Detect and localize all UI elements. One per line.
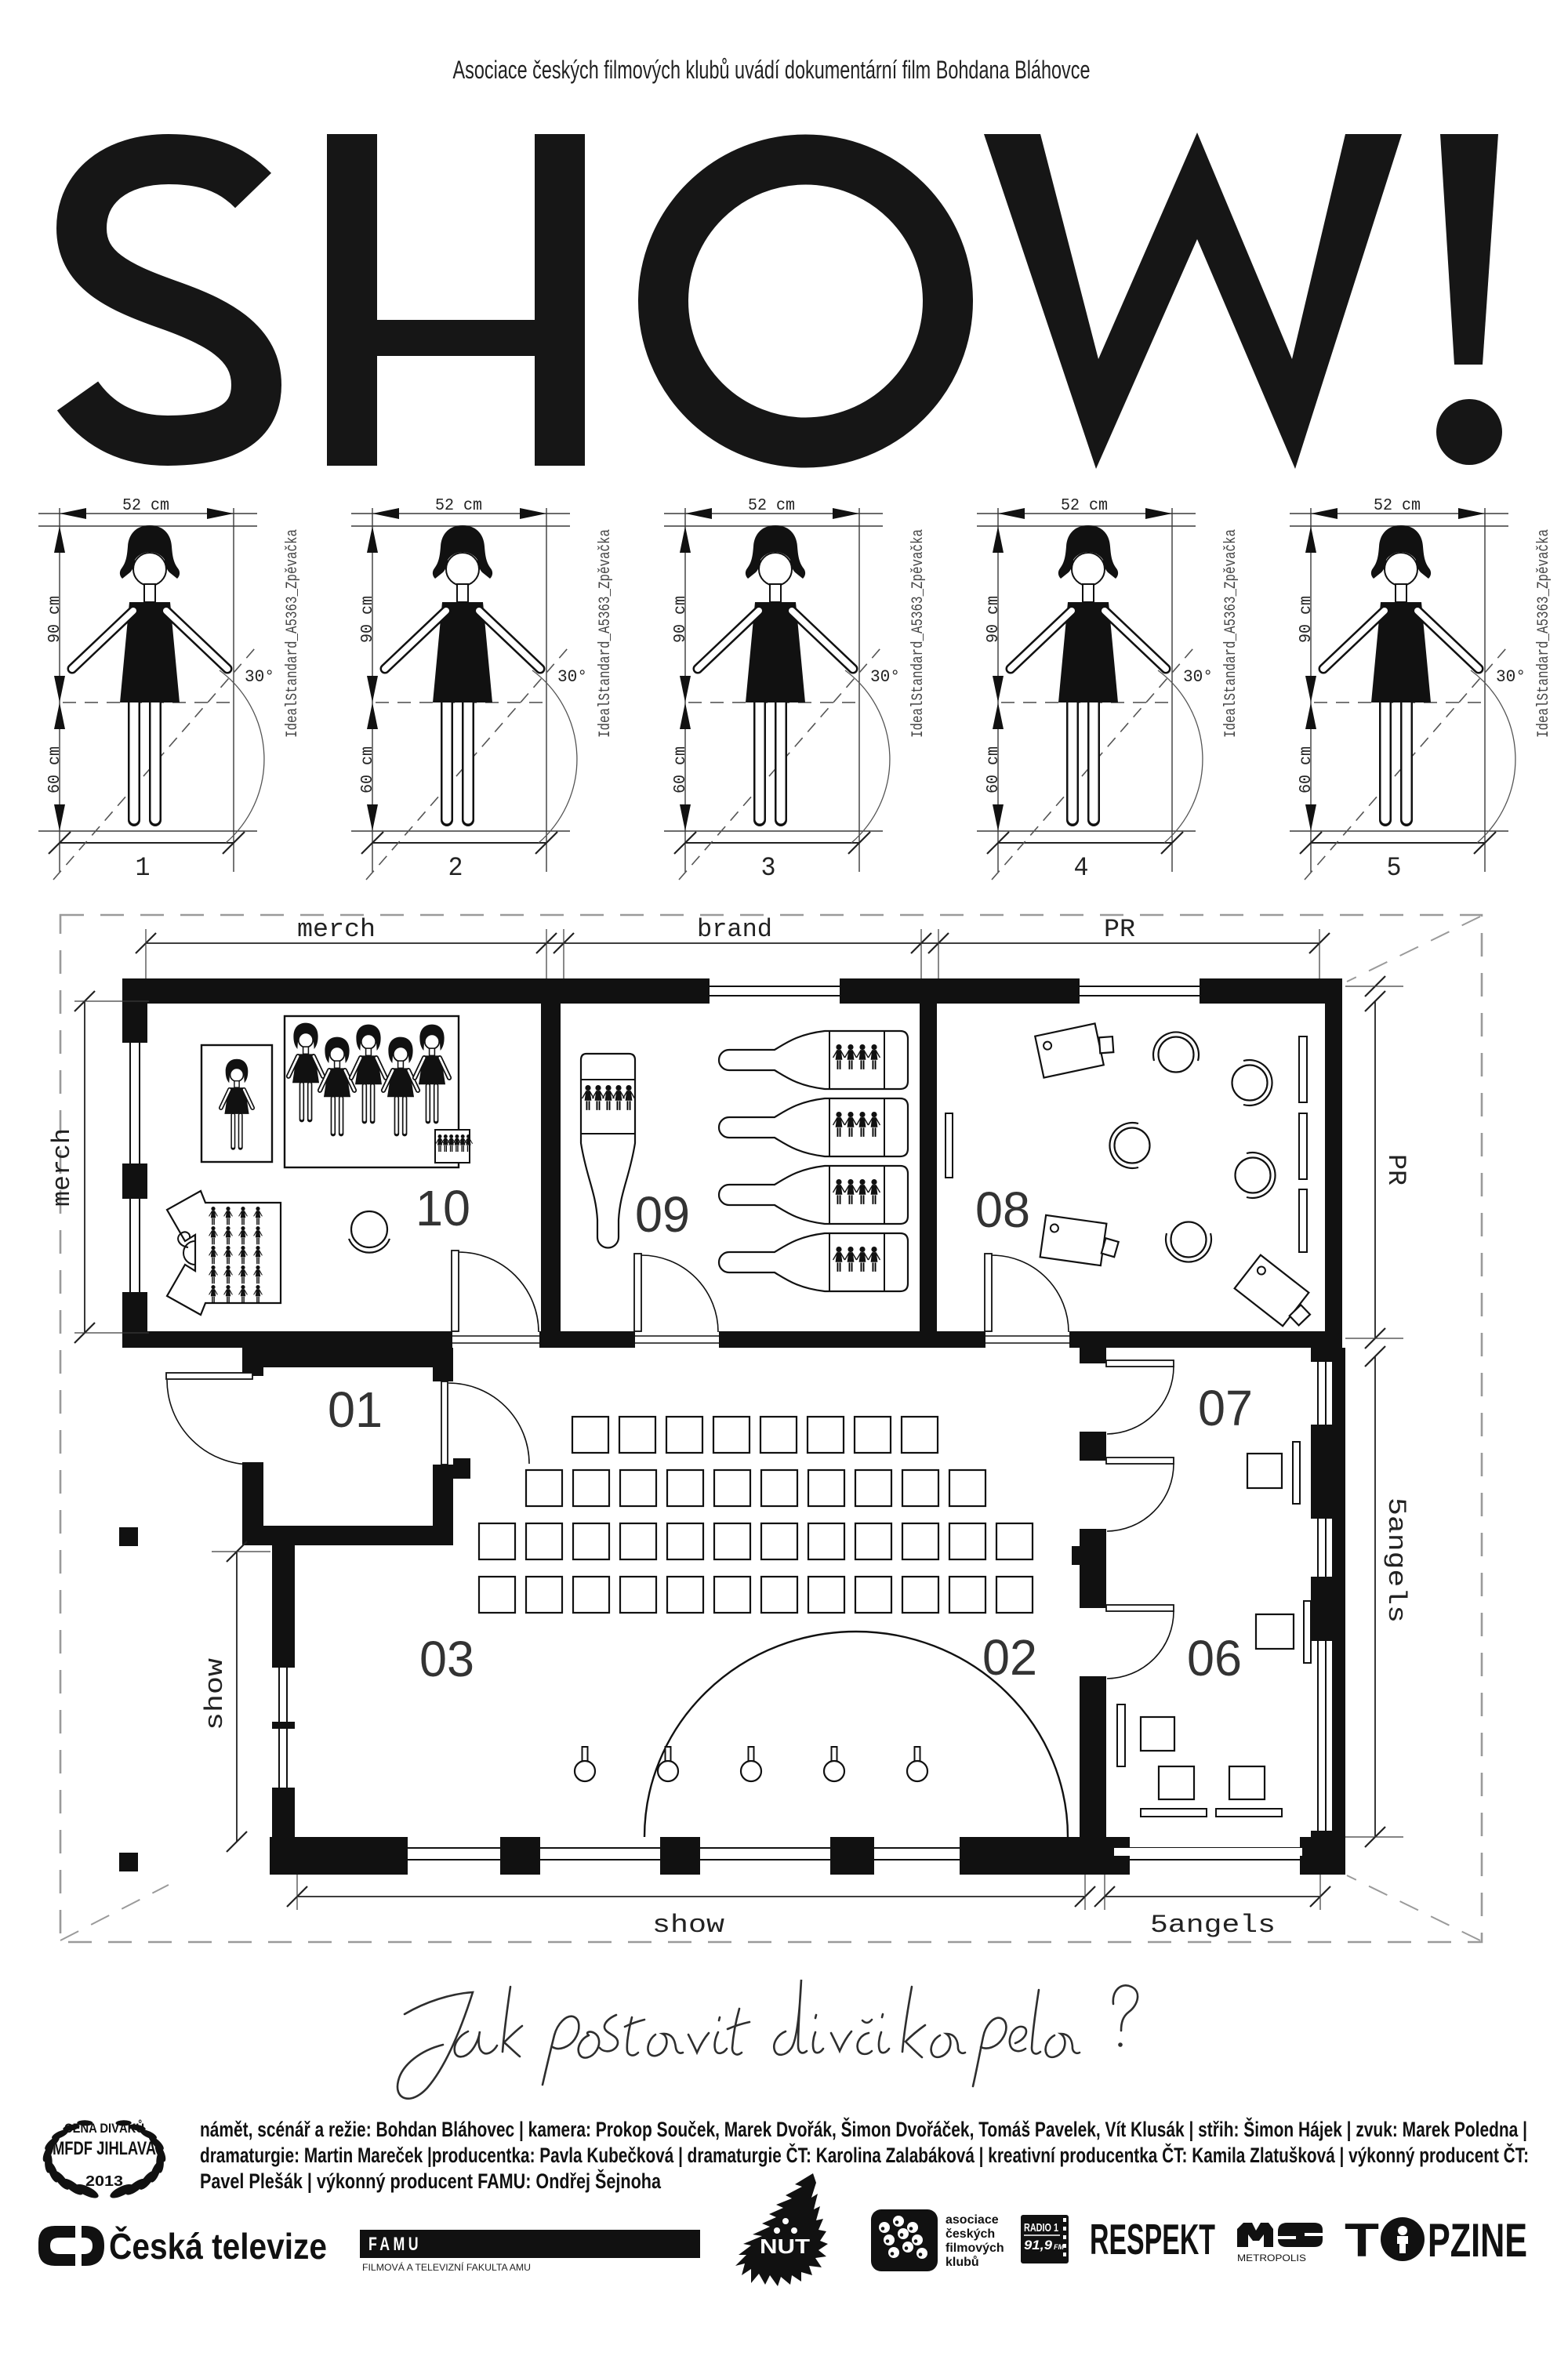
svg-text:IdealStandard_A5363_Zpěvačka: IdealStandard_A5363_Zpěvačka (1535, 529, 1553, 738)
svg-text:30°: 30° (245, 667, 274, 687)
svg-text:filmových: filmových (946, 2242, 1004, 2255)
svg-text:FM: FM (1054, 2243, 1064, 2251)
svg-text:merch: merch (48, 1128, 77, 1207)
svg-text:52 cm: 52 cm (122, 497, 169, 515)
svg-text:3: 3 (761, 854, 776, 884)
svg-text:METROPOLIS: METROPOLIS (1237, 2253, 1306, 2263)
svg-text:show: show (652, 1911, 724, 1940)
svg-text:09: 09 (635, 1186, 690, 1243)
svg-text:90 cm: 90 cm (672, 596, 690, 643)
svg-text:60 cm: 60 cm (985, 746, 1003, 793)
svg-text:52 cm: 52 cm (1061, 497, 1108, 515)
svg-text:CENA DIVÁKŮ: CENA DIVÁKŮ (64, 2120, 144, 2136)
svg-text:IdealStandard_A5363_Zpěvačka: IdealStandard_A5363_Zpěvačka (597, 529, 615, 738)
svg-text:10: 10 (416, 1180, 470, 1236)
svg-text:60 cm: 60 cm (359, 746, 377, 793)
svg-text:merch: merch (297, 915, 376, 944)
svg-text:90 cm: 90 cm (985, 596, 1003, 643)
svg-text:90 cm: 90 cm (1298, 596, 1316, 643)
svg-text:IdealStandard_A5363_Zpěvačka: IdealStandard_A5363_Zpěvačka (1222, 529, 1240, 738)
svg-text:01: 01 (328, 1381, 383, 1438)
svg-text:PR: PR (1104, 915, 1135, 944)
svg-text:90 cm: 90 cm (359, 596, 377, 643)
svg-text:PZINE: PZINE (1428, 2214, 1527, 2267)
svg-text:5angels: 5angels (1381, 1497, 1410, 1623)
svg-text:5: 5 (1387, 854, 1402, 884)
svg-text:Česká televize: Česká televize (109, 2226, 327, 2267)
svg-text:MFDF JIHLAVA: MFDF JIHLAVA (53, 2138, 156, 2159)
svg-text:30°: 30° (870, 667, 900, 687)
svg-text:03: 03 (419, 1631, 474, 1687)
svg-text:námět, scénář a režie: Bohdan: námět, scénář a režie: Bohdan Bláhovec |… (200, 2117, 1527, 2141)
svg-text:FAMU: FAMU (368, 2234, 422, 2255)
svg-text:2013: 2013 (85, 2173, 123, 2189)
svg-text:2: 2 (448, 854, 463, 884)
svg-text:02: 02 (982, 1629, 1037, 1686)
svg-text:60 cm: 60 cm (672, 746, 690, 793)
svg-text:PR: PR (1381, 1154, 1410, 1185)
svg-text:5angels: 5angels (1150, 1911, 1276, 1940)
svg-text:60 cm: 60 cm (46, 746, 64, 793)
svg-text:brand: brand (697, 915, 772, 944)
svg-text:Pavel Plešák | výkonný produce: Pavel Plešák | výkonný producent FAMU: O… (200, 2169, 662, 2193)
svg-text:T: T (1345, 2214, 1379, 2267)
svg-text:IdealStandard_A5363_Zpěvačka: IdealStandard_A5363_Zpěvačka (909, 529, 927, 738)
svg-text:Asociace českých filmových klu: Asociace českých filmových klubů uvádí d… (453, 56, 1091, 84)
svg-text:91,9: 91,9 (1024, 2238, 1053, 2253)
svg-text:52 cm: 52 cm (435, 497, 482, 515)
svg-text:FILMOVÁ A TELEVIZNÍ FAKULTA AM: FILMOVÁ A TELEVIZNÍ FAKULTA AMU (362, 2261, 531, 2273)
svg-text:06: 06 (1187, 1630, 1242, 1686)
svg-text:klubů: klubů (946, 2256, 979, 2269)
svg-text:dramaturgie: Martin Mareček |p: dramaturgie: Martin Mareček |producentka… (200, 2143, 1529, 2167)
svg-text:IdealStandard_A5363_Zpěvačka: IdealStandard_A5363_Zpěvačka (284, 529, 302, 738)
svg-text:asociace: asociace (946, 2213, 999, 2227)
svg-text:07: 07 (1198, 1380, 1253, 1436)
svg-text:RADIO 1: RADIO 1 (1024, 2221, 1058, 2234)
svg-text:52 cm: 52 cm (748, 497, 795, 515)
svg-text:30°: 30° (1496, 667, 1526, 687)
svg-text:08: 08 (975, 1182, 1030, 1238)
svg-text:RESPEKT: RESPEKT (1090, 2215, 1215, 2263)
svg-text:52 cm: 52 cm (1374, 497, 1421, 515)
svg-text:30°: 30° (557, 667, 587, 687)
svg-text:4: 4 (1074, 854, 1089, 884)
svg-text:30°: 30° (1183, 667, 1213, 687)
svg-text:60 cm: 60 cm (1298, 746, 1316, 793)
svg-text:show: show (201, 1658, 230, 1730)
svg-text:1: 1 (136, 854, 151, 884)
svg-text:NUT: NUT (760, 2234, 810, 2258)
svg-text:90 cm: 90 cm (46, 596, 64, 643)
svg-text:českých: českých (946, 2227, 995, 2241)
